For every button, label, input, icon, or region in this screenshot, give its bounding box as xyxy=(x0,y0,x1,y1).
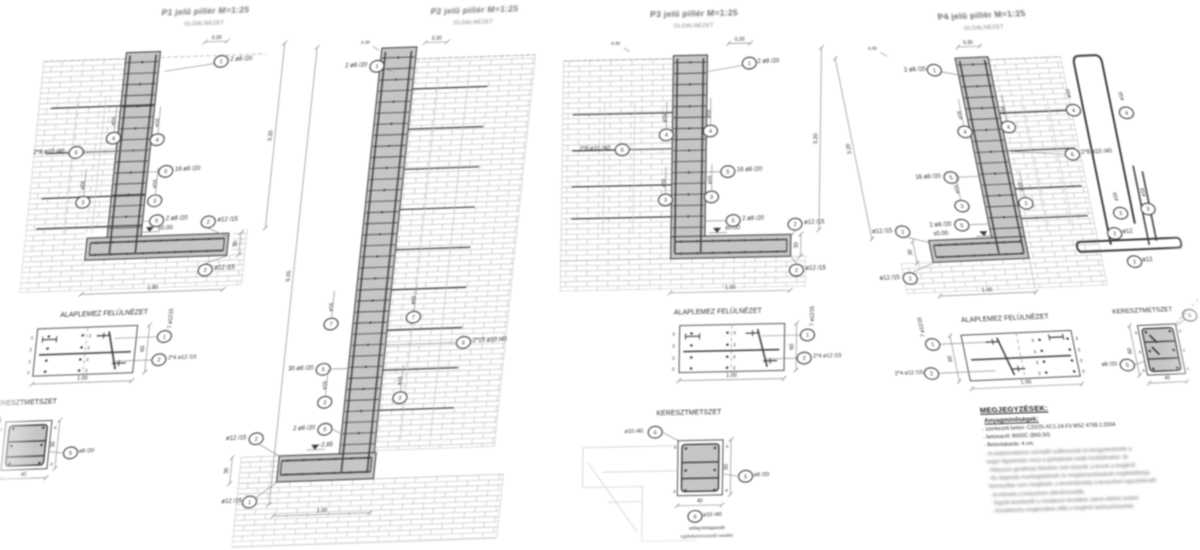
label-spacing_mark: 3 xyxy=(1077,347,1081,352)
position-number: 3 xyxy=(398,396,402,402)
label-title: ALAPLEMEZ FELÜLNÉZET xyxy=(674,306,763,317)
dim-label: 1.00 xyxy=(981,287,993,293)
position-number: 5 xyxy=(726,170,729,176)
notes-lines: - szerkezeti beton: C20/25-XC1-24-F3 MSZ… xyxy=(982,418,1200,515)
label-cross_bars: 2*4 ø12 /15 xyxy=(813,353,842,360)
label-stirrups: 16 ø8 /20 xyxy=(737,167,763,174)
position-number: 3 xyxy=(664,198,667,204)
label-cover_mark: 4 xyxy=(0,427,3,432)
label-spacing_mark: 3 xyxy=(1082,369,1086,374)
label-cover_mark: 4 xyxy=(1134,331,1138,336)
dim-label: 1.00 xyxy=(726,373,737,379)
label-top_bar: 2 ø8 /20 xyxy=(345,63,368,70)
label-top_bar: 2 ø8 /20 xyxy=(757,58,780,64)
position-number: 4 xyxy=(112,136,116,142)
label-title: ALAPLEMEZ FELÜLNÉZET xyxy=(960,311,1050,324)
label-cover_mark: 4 xyxy=(50,461,54,466)
position-number: 2 xyxy=(254,437,258,443)
label-bar_upper: ø16 xyxy=(411,295,418,304)
position-number: 4 xyxy=(155,138,159,144)
label-stirrups: 30 ø8 /20 xyxy=(288,366,315,373)
masonry-hatch xyxy=(901,258,1035,293)
label-bar_upper: ø16 xyxy=(328,302,335,311)
label-foot_top: ø12 /15 xyxy=(217,217,239,224)
dim-label: 40 xyxy=(697,499,703,505)
label-bar_lower: ø16 xyxy=(397,376,404,385)
label-cover_mark: 4 xyxy=(673,489,676,494)
label-tie: ø10 /40 xyxy=(703,512,722,518)
label-bar_lower: ø16 xyxy=(662,178,668,187)
dim-label: 30 xyxy=(50,441,57,447)
dim-label: 1.00 xyxy=(725,285,736,291)
position-number: 5 xyxy=(744,474,747,480)
label-stirrup: ø8 /20 xyxy=(754,472,770,478)
rebar-line xyxy=(42,337,43,343)
label-long_bars: 7 ø12/15 xyxy=(810,306,816,326)
dim-label: 6.05 xyxy=(286,270,293,281)
drawing-sheet: P1 jelű pillér M=1:25 OLDALNÉZET ±0.001.… xyxy=(0,0,1200,550)
label-level: ±0.00 xyxy=(157,225,173,232)
label-tie: ø10 /40 xyxy=(625,428,644,434)
label-spacing_mark: 3 xyxy=(27,370,31,375)
label-spacing_mark: 3 xyxy=(29,347,33,352)
label-spacing_mark: 3 xyxy=(1079,358,1083,363)
dim-label: 60 xyxy=(1127,348,1134,354)
concrete-element xyxy=(85,233,229,260)
label-bar_f1: ø12 xyxy=(1122,229,1134,235)
concrete-element xyxy=(277,453,377,482)
label-cross_bars: 2*4 ø12 /15 xyxy=(894,370,924,377)
label-foot_bottom: ø12 /15 xyxy=(879,275,901,282)
position-number: 1 xyxy=(748,61,751,67)
label-top_dim: 0.30 xyxy=(868,46,878,51)
label-bar_lower: ø16 xyxy=(322,381,329,390)
level-mark xyxy=(979,231,988,236)
masonry-hatch xyxy=(560,256,805,291)
label-mesh: 2*15 ø10 /40 xyxy=(472,337,508,344)
dim-label: 40 xyxy=(20,472,26,478)
label-cover_mark: 4 xyxy=(1142,368,1146,373)
position-number: 2 xyxy=(793,222,796,228)
label-cover_mark: 4 xyxy=(1182,348,1186,353)
label-mesh: 2*8 ø10 /40 xyxy=(579,146,611,153)
rebar-line xyxy=(1049,337,1063,338)
dim-label: 0.30 xyxy=(735,37,745,43)
label-foot_bottom: ø12 /15 xyxy=(214,265,236,272)
label-long_bars: 7 ø12/15 xyxy=(167,308,175,328)
label-top_bar: 2 ø8 /20 xyxy=(230,56,253,63)
position-number: 3 xyxy=(710,195,713,201)
label-stirrups: 16 ø8 /20 xyxy=(915,174,942,181)
position-number: 6 xyxy=(654,430,657,436)
label-top_dim: 0.30 xyxy=(611,41,620,46)
dim-label: 60 xyxy=(789,344,795,350)
label-top_dim: 0.30 xyxy=(361,39,371,44)
label-cover_mark: 4 xyxy=(726,444,729,449)
position-number: 6 xyxy=(74,150,78,156)
position-number: 2 xyxy=(203,268,207,274)
label-cover_mark: 4 xyxy=(1178,329,1182,334)
dim-label: 0.30 xyxy=(431,35,442,41)
label-stirrups: 16 ø8 /20 xyxy=(175,166,202,173)
label-stirrup: ø8 /20 xyxy=(1101,362,1118,369)
position-number: 3 xyxy=(81,200,85,206)
position-number: 3 xyxy=(153,199,157,205)
position-number: 2 xyxy=(795,268,798,274)
rebar-line xyxy=(682,478,719,479)
dim-label: 1.00 xyxy=(316,508,327,514)
dim-label: 30 xyxy=(724,464,730,470)
position-number: 5 xyxy=(323,427,327,433)
position-number: 5 xyxy=(164,169,168,175)
label-long_bars: 7 ø12/15 xyxy=(917,317,927,337)
panel-p2-drawing: 6.051.00300.300.302 ø8 /20162*15 ø10 /40… xyxy=(204,0,580,550)
label-foot_bottom: ø12 /15 xyxy=(805,266,826,272)
label-foot_bottom: ø12 /15 xyxy=(221,498,243,505)
label-bar_lower: ø16 xyxy=(708,175,714,184)
notes-block: MEGJEGYZÉSEK: Anyagminőségek: - szerkeze… xyxy=(979,399,1200,516)
label-foot_stirrups: 2 ø8 /20 xyxy=(165,216,188,223)
label-foot_stirrups: 2 ø8 /20 xyxy=(929,222,953,229)
masonry-hatch xyxy=(561,59,674,261)
dim-label: 30 xyxy=(907,249,914,255)
dim-label: 0.30 xyxy=(211,35,222,41)
label-spacing_mark: 3 xyxy=(30,335,34,340)
dim-label: 0.30 xyxy=(963,40,974,46)
dim-label: 1.00 xyxy=(1020,380,1032,386)
concrete-element xyxy=(671,234,791,259)
panel-p2: P2 jelű pillér M=1:25 OLDALNÉZET 6.051.0… xyxy=(204,0,580,550)
dim-label: 30 xyxy=(224,468,231,474)
label-bar_u: ø16 xyxy=(1118,91,1126,100)
label-bar_upper: ø16 xyxy=(155,118,162,127)
label-bar_upper: ø16 xyxy=(663,113,669,122)
dim-label: 60 xyxy=(947,356,954,362)
label-spacing_mark: 3 xyxy=(28,359,32,364)
position-number: 3 xyxy=(323,400,327,406)
label-cover_mark: 4 xyxy=(1186,366,1190,371)
label-spacing_mark: 3 xyxy=(672,367,675,372)
label-spacing_mark: 3 xyxy=(672,356,675,361)
label-cover_mark: 4 xyxy=(725,488,728,493)
label-level: ±0.00 xyxy=(933,231,950,238)
label-foot_top: ø12 /15 xyxy=(226,435,248,442)
position-number: 5 xyxy=(321,367,325,373)
label-cover_mark: 4 xyxy=(1138,349,1142,354)
position-bubble xyxy=(0,414,1,426)
label-spacing_mark: 3 xyxy=(672,332,675,337)
label-bar_u: ø16 xyxy=(1065,89,1073,98)
dim-label: 60 xyxy=(140,346,147,352)
dim-label: 3.20 xyxy=(813,133,819,144)
label-spacing_mark: 3 xyxy=(672,344,675,349)
label-top_bar: 2 ø8 /20 xyxy=(904,67,928,74)
position-number: 4 xyxy=(665,133,668,139)
label-bar_upper: ø16 xyxy=(957,110,965,119)
position-number: 6 xyxy=(462,340,466,346)
label-spacing_mark: 3 xyxy=(1075,336,1079,341)
position-number: 1 xyxy=(375,64,379,70)
label-stirrup: ø8 /20 xyxy=(78,448,94,455)
position-number: 2 xyxy=(206,220,210,226)
label-foot_top: ø12 /15 xyxy=(872,228,894,235)
label-title: KERESZTMETSZET xyxy=(0,398,58,407)
label-bar_upper: ø16 xyxy=(111,117,118,126)
position-number: 6 xyxy=(621,148,624,154)
label-foot_stirrups: 2 ø8 /20 xyxy=(293,426,316,433)
position-number: 1 xyxy=(219,59,223,65)
rebar-line xyxy=(56,336,57,342)
label-foot_top: ø12 /15 xyxy=(804,220,825,226)
dim-label: 1.00 xyxy=(77,376,88,382)
label-cover_mark: 4 xyxy=(54,425,58,430)
position-number: 1 xyxy=(806,333,809,339)
position-number: 7 xyxy=(329,322,333,328)
label-bar_f2: ø12 xyxy=(1142,257,1154,263)
dim-label: 30 xyxy=(794,242,800,248)
masonry-hatch xyxy=(232,474,504,548)
label-mesh: 2*8 ø10 /40 xyxy=(1081,149,1114,156)
rebar-line xyxy=(103,333,104,339)
position-number: 6 xyxy=(693,514,696,520)
label-cross_bars: 2*4 ø12 /15 xyxy=(168,354,197,361)
level-mark xyxy=(713,228,721,233)
position-number: 2 xyxy=(803,356,806,362)
position-number: 2 xyxy=(157,358,161,364)
position-number: 7 xyxy=(411,315,415,321)
label-bar_lower: ø16 xyxy=(954,185,962,194)
dim-label: 3.20 xyxy=(845,144,853,155)
rebar-line xyxy=(682,462,719,463)
label-title: ALAPLEMEZ FELÜLNÉZET xyxy=(60,307,149,319)
label-bar_lower: ø16 xyxy=(152,179,159,188)
label-bar_l: ø16 xyxy=(1112,192,1120,201)
label-caption2: egybebetonozandó vasalás xyxy=(681,533,733,539)
position-number: 5 xyxy=(69,451,73,457)
position-number: 5 xyxy=(732,218,735,224)
position-number: 5 xyxy=(155,219,159,225)
label-level: -2.85 xyxy=(319,442,334,448)
dim-label: 40 xyxy=(1164,376,1171,382)
position-number: 1 xyxy=(248,500,252,506)
label-mesh: 2*8 ø10 /40 xyxy=(33,149,65,156)
dim-label: 1.00 xyxy=(147,285,158,291)
label-bar_lower: ø16 xyxy=(80,181,87,190)
stirrup-loop xyxy=(681,444,719,492)
position-number: 1 xyxy=(162,334,166,340)
label-foot_stirrups: 2 ø8 /20 xyxy=(742,216,765,222)
position-number: 4 xyxy=(709,129,712,135)
label-title: KERESZTMETSZET xyxy=(1112,306,1174,316)
label-title: KERESZTMETSZET xyxy=(656,409,722,417)
label-caption1: utólag kimagasodó xyxy=(689,525,726,531)
concrete-element xyxy=(929,236,1029,262)
label-bar_upper: ø16 xyxy=(707,109,713,118)
